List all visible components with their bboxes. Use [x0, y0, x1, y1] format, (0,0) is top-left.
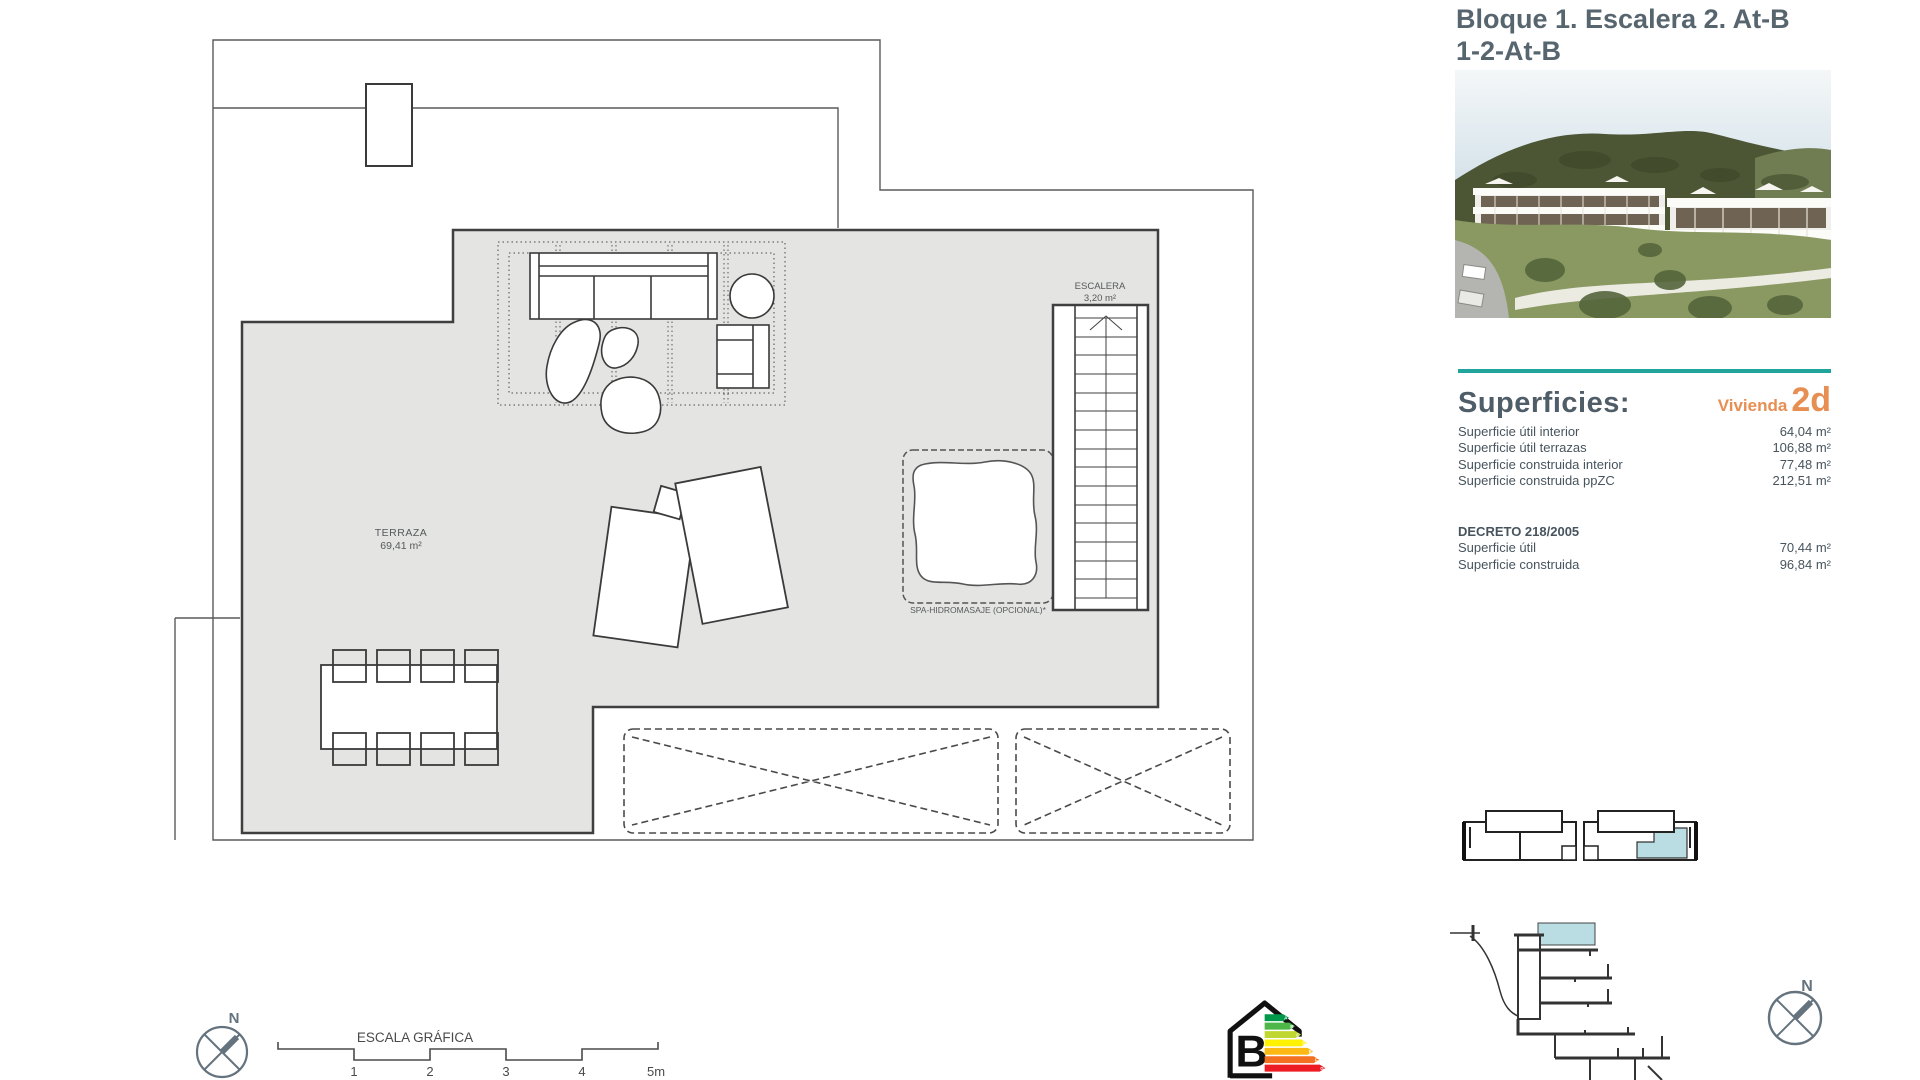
svg-text:G: G	[1320, 1066, 1324, 1071]
spa-label: SPA-HIDROMASAJE (OPCIONAL)*	[910, 605, 1047, 615]
teal-divider	[1458, 369, 1831, 373]
escalera-area: 3,20 m²	[1084, 293, 1116, 304]
svg-text:F: F	[1315, 1057, 1318, 1062]
section-diagram	[1440, 916, 1670, 1080]
round-table	[730, 274, 774, 318]
scale-bar-title: ESCALA GRÁFICA	[357, 1030, 473, 1045]
title-line-1: Bloque 1. Escalera 2. At-B	[1456, 4, 1886, 36]
stair-core	[1518, 935, 1540, 1019]
north-compass-right: N	[1755, 975, 1845, 1080]
table-row: Superficie útil terrazas 106,88 m²	[1458, 440, 1831, 456]
svg-text:4: 4	[578, 1064, 585, 1079]
decreto-heading: DECRETO 218/2005	[1458, 524, 1831, 540]
svg-text:3: 3	[502, 1064, 509, 1079]
north-label: N	[1801, 978, 1813, 995]
vivienda-tag: Vivienda2d	[1718, 381, 1831, 420]
building-render-photo	[1455, 70, 1831, 318]
svg-text:5m: 5m	[647, 1064, 665, 1079]
table-row: Superficie construida 96,84 m²	[1458, 557, 1831, 573]
north-compass-left: N	[197, 1010, 247, 1077]
title-line-2: 1-2-At-B	[1456, 36, 1886, 68]
svg-text:E: E	[1309, 1049, 1312, 1054]
svg-text:2: 2	[426, 1064, 433, 1079]
page-title: Bloque 1. Escalera 2. At-B 1-2-At-B	[1456, 4, 1886, 67]
svg-text:69,41 m²: 69,41 m²	[380, 540, 422, 552]
chimney	[366, 84, 412, 166]
table-row: Superficie construida ppZC 212,51 m²	[1458, 473, 1831, 489]
superficies-table: Superficie útil interior 64,04 m² Superf…	[1458, 424, 1831, 490]
dining-set	[321, 650, 498, 765]
decreto-table: DECRETO 218/2005 Superficie útil 70,44 m…	[1458, 524, 1831, 573]
side-table	[717, 325, 769, 388]
table-row: Superficie útil 70,44 m²	[1458, 540, 1831, 556]
escalera-label: ESCALERA	[1075, 281, 1126, 292]
scale-bar: ESCALA GRÁFICA 1 2 3 4 5m	[278, 1030, 665, 1079]
plan-sheet: SPA-HIDROMASAJE (OPCIONAL)* ESCALERA 3,2…	[0, 0, 1920, 1080]
key-plan-diagram	[1458, 806, 1702, 866]
terrain-line	[1470, 936, 1520, 1017]
svg-text:1: 1	[350, 1064, 357, 1079]
north-label: N	[229, 1010, 240, 1027]
energy-rating-icon: B ABCDEFG	[1218, 990, 1330, 1080]
energy-bars: ABCDEFG	[1265, 1014, 1326, 1071]
vivienda-code: 2d	[1791, 381, 1831, 419]
section-highlighted-floor	[1538, 923, 1595, 945]
energy-rating-letter: B	[1235, 1027, 1267, 1077]
svg-text:TERRAZA: TERRAZA	[375, 527, 428, 539]
sofa	[530, 253, 717, 319]
floor-plan: SPA-HIDROMASAJE (OPCIONAL)* ESCALERA 3,2…	[0, 0, 1340, 1080]
table-row: Superficie útil interior 64,04 m²	[1458, 424, 1831, 440]
pergola-skylights	[624, 729, 1230, 833]
vivienda-label: Vivienda	[1718, 396, 1788, 415]
superficies-heading: Superficies:	[1458, 387, 1630, 420]
table-row: Superficie construida interior 77,48 m²	[1458, 457, 1831, 473]
stairs: ESCALERA 3,20 m²	[1053, 281, 1148, 610]
terraza-label: TERRAZA 69,41 m²	[375, 527, 428, 552]
